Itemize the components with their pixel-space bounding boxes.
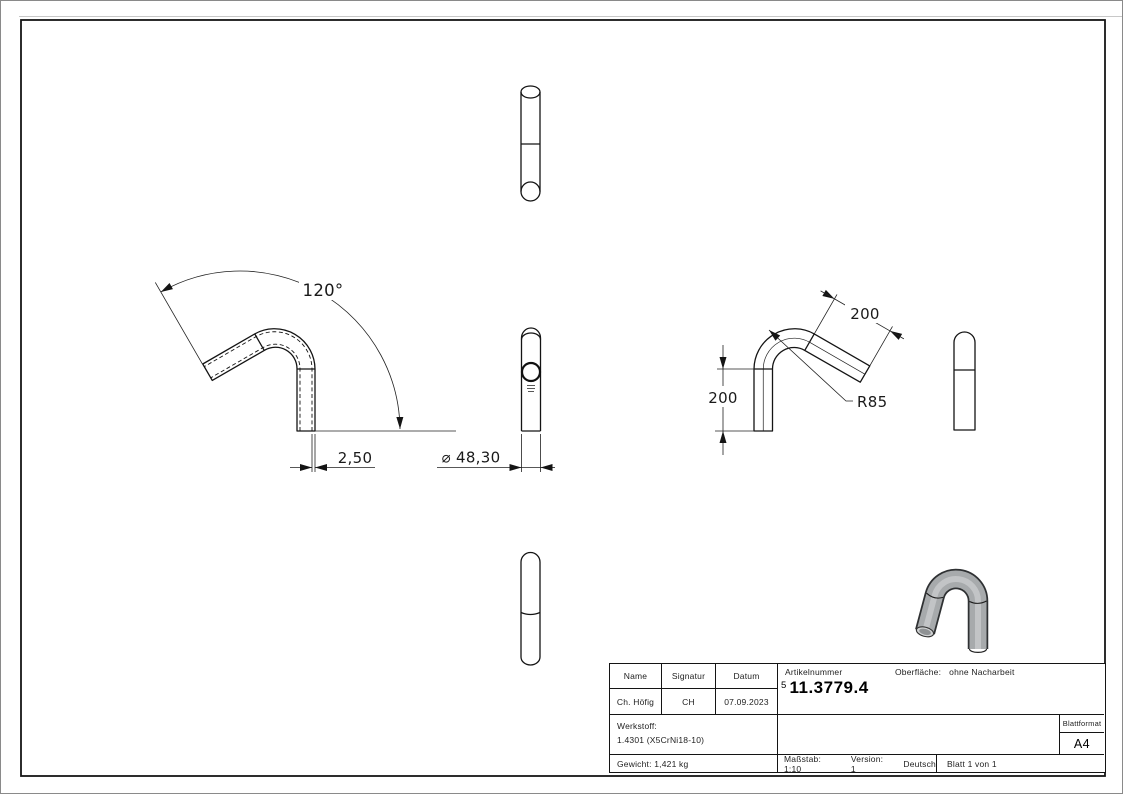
name-value-cell: Ch. Höfig [610,689,662,714]
blattformat-label-cell: Blattformat [1059,714,1104,733]
artikelnummer-label: Artikelnummer [785,667,842,677]
artikelnummer-cell: Artikelnummer Oberfläche: ohne Nacharbei… [778,664,1104,714]
side-view-front: ⌀ 48,30 [437,328,555,472]
massstab-value: Maßstab: 1:10 [784,754,832,774]
right-view: 200 200 R85 [706,291,904,455]
oberflaeche-value: ohne Nacharbeit [949,667,1014,677]
bottom-view [521,553,540,666]
diameter-dimension-label: ⌀ 48,30 [442,449,501,467]
top-view [521,86,540,201]
version-value: Version: 1 [851,754,885,774]
front-view: 120° 2,50 [155,271,456,472]
angle-dimension-label: 120° [303,281,344,300]
werkstoff-label: Werkstoff: [617,719,777,733]
gewicht-cell: Gewicht: 1,421 kg [610,754,778,773]
artikelnummer-prefix: 5 [781,680,786,691]
wall-thickness-label: 2,50 [338,449,373,467]
title-block-empty-cell [778,714,1059,754]
blatt-cell: Blatt 1 von 1 [937,754,1104,773]
signatur-value-cell: CH [662,689,716,714]
leg1-dimension-label: 200 [708,389,738,407]
scale-version-language-cell: Maßstab: 1:10 Version: 1 Deutsch [778,754,937,773]
drawing-sheet: 120° 2,50 ⌀ 48,30 [0,0,1123,794]
sprache-value: Deutsch [903,759,936,769]
werkstoff-value: 1.4301 (X5CrNi18-10) [617,733,777,747]
blattformat-value-cell: A4 [1059,733,1104,754]
signatur-header-cell: Signatur [662,664,716,689]
iso-3d-view [915,579,986,652]
datum-header-cell: Datum [716,664,778,689]
pipe-3d-bottom-edge [970,649,987,652]
artikelnummer-value: 5 11.3779.4 [781,679,869,696]
datum-value-cell: 07.09.2023 [716,689,778,714]
werkstoff-cell: Werkstoff: 1.4301 (X5CrNi18-10) [610,714,778,754]
side-view-right [954,332,975,430]
artikelnummer-number: 11.3779.4 [789,679,868,696]
oberflaeche-field: Oberfläche: ohne Nacharbeit [895,667,1015,677]
title-block: Name Signatur Datum Ch. Höfig CH 07.09.2… [609,663,1106,773]
oberflaeche-label: Oberfläche: [895,667,941,677]
name-header-cell: Name [610,664,662,689]
radius-dimension-label: R85 [857,393,887,411]
leg2-dimension-label: 200 [850,305,880,323]
